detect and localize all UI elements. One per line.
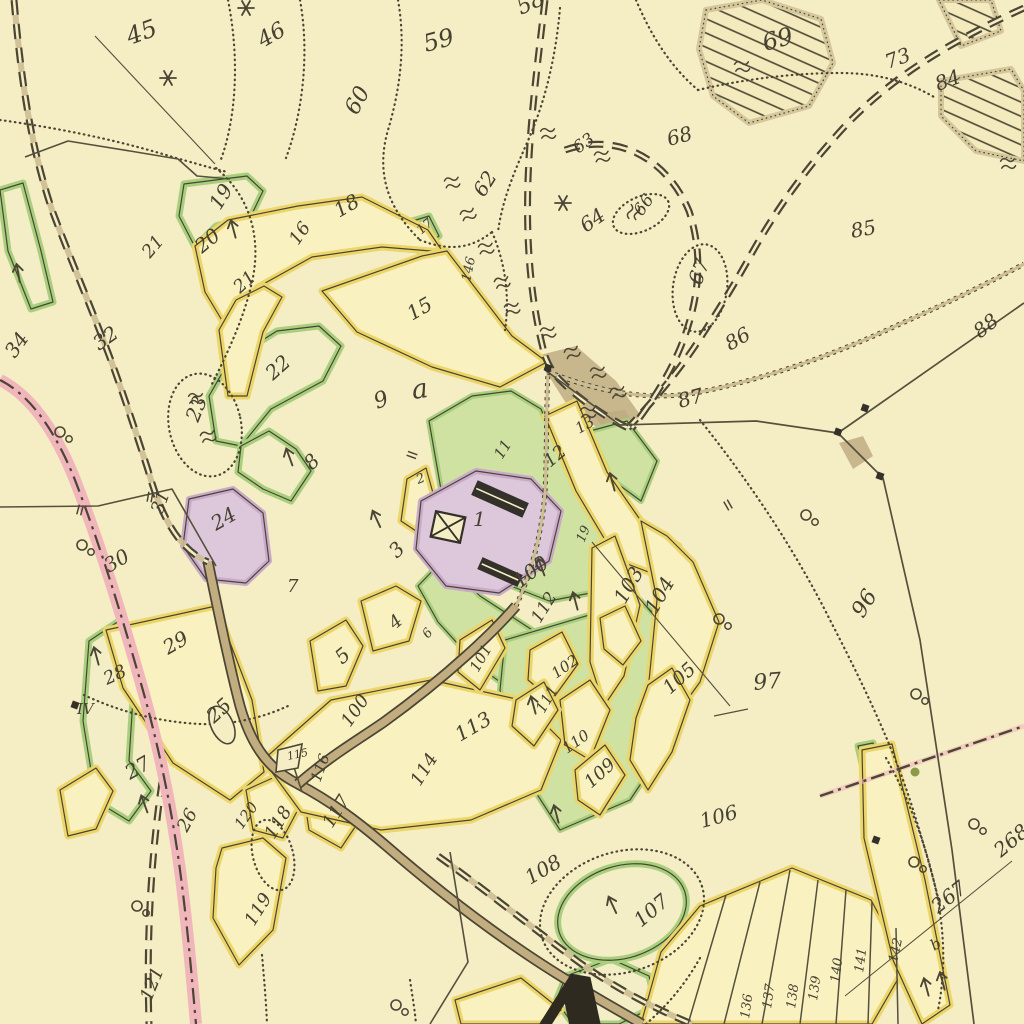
building-outbuilding-icon — [431, 511, 466, 543]
parcel-number-label: 85 — [849, 215, 878, 243]
cadastral-map-svg: 4546585960626364666869738485678687883432… — [0, 0, 1024, 1024]
parcel-number-label: 97 — [752, 669, 782, 696]
parcel-number-label: IV — [76, 700, 96, 718]
cadastral-map: 4546585960626364666869738485678687883432… — [0, 0, 1024, 1024]
parcel-number-label: 7 — [287, 576, 299, 597]
marker-dot-icon — [911, 768, 920, 777]
parcel-number-label: 1 — [473, 507, 486, 531]
